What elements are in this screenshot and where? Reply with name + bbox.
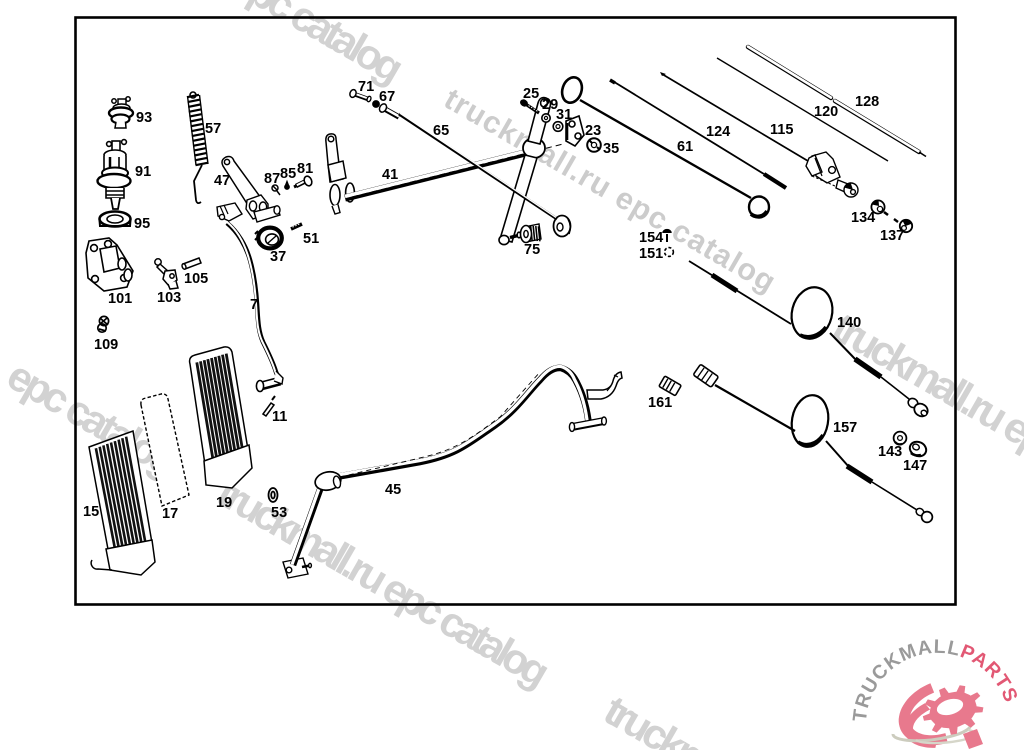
svg-text:71: 71 — [358, 79, 374, 95]
svg-text:45: 45 — [385, 482, 401, 498]
svg-text:101: 101 — [108, 291, 132, 307]
svg-text:93: 93 — [136, 110, 152, 126]
svg-text:140: 140 — [837, 315, 861, 331]
svg-text:53: 53 — [271, 505, 287, 521]
svg-text:75: 75 — [524, 242, 540, 258]
svg-text:128: 128 — [855, 94, 879, 110]
svg-text:35: 35 — [603, 141, 619, 157]
svg-text:91: 91 — [135, 164, 151, 180]
svg-text:115: 115 — [770, 122, 793, 138]
svg-text:25: 25 — [523, 86, 539, 102]
svg-text:23: 23 — [585, 123, 601, 139]
svg-text:124: 124 — [706, 124, 730, 140]
svg-text:103: 103 — [157, 290, 181, 306]
svg-text:161: 161 — [648, 395, 672, 411]
svg-text:11: 11 — [272, 409, 287, 425]
svg-text:37: 37 — [270, 249, 286, 265]
svg-text:87: 87 — [264, 171, 280, 187]
svg-text:137: 137 — [880, 228, 904, 244]
svg-text:109: 109 — [94, 337, 118, 353]
svg-text:57: 57 — [205, 121, 221, 137]
svg-text:61: 61 — [677, 139, 693, 155]
svg-text:147: 147 — [903, 458, 927, 474]
svg-text:105: 105 — [184, 271, 208, 287]
svg-text:151: 151 — [639, 246, 663, 262]
svg-text:65: 65 — [433, 123, 449, 139]
svg-text:31: 31 — [556, 107, 572, 123]
svg-text:120: 120 — [814, 104, 838, 120]
svg-text:143: 143 — [878, 444, 902, 460]
svg-text:95: 95 — [134, 216, 150, 232]
svg-text:85: 85 — [280, 166, 296, 182]
svg-text:157: 157 — [833, 420, 857, 436]
svg-text:51: 51 — [303, 231, 319, 247]
svg-text:7: 7 — [250, 297, 258, 313]
svg-text:134: 134 — [851, 210, 875, 226]
svg-text:19: 19 — [216, 495, 232, 511]
svg-text:15: 15 — [83, 504, 99, 520]
svg-text:41: 41 — [382, 167, 398, 183]
svg-text:47: 47 — [214, 173, 230, 189]
svg-text:81: 81 — [297, 161, 313, 177]
svg-text:67: 67 — [379, 89, 395, 105]
svg-text:17: 17 — [162, 506, 178, 522]
svg-text:154: 154 — [639, 230, 663, 246]
